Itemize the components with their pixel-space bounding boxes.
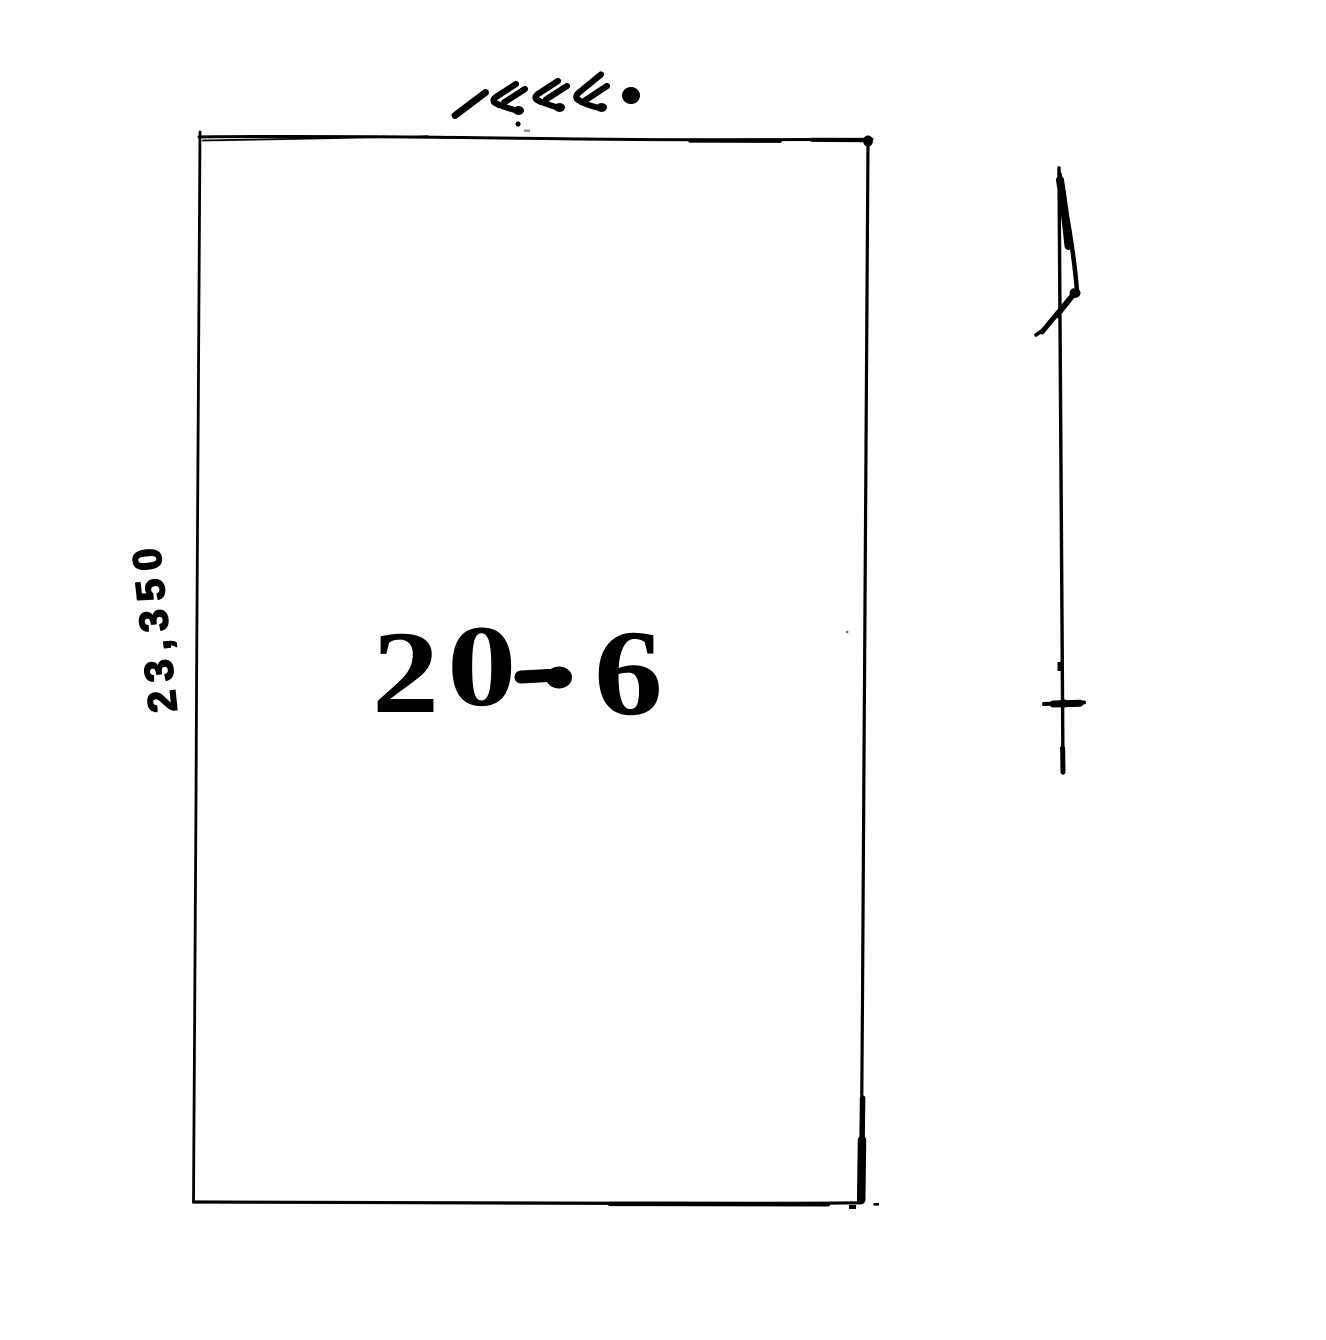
svg-text:2: 2 [372,607,439,738]
svg-text:0: 0 [447,601,516,730]
svg-text:23,350: 23,350 [124,538,186,715]
svg-text:6: 6 [594,606,663,741]
